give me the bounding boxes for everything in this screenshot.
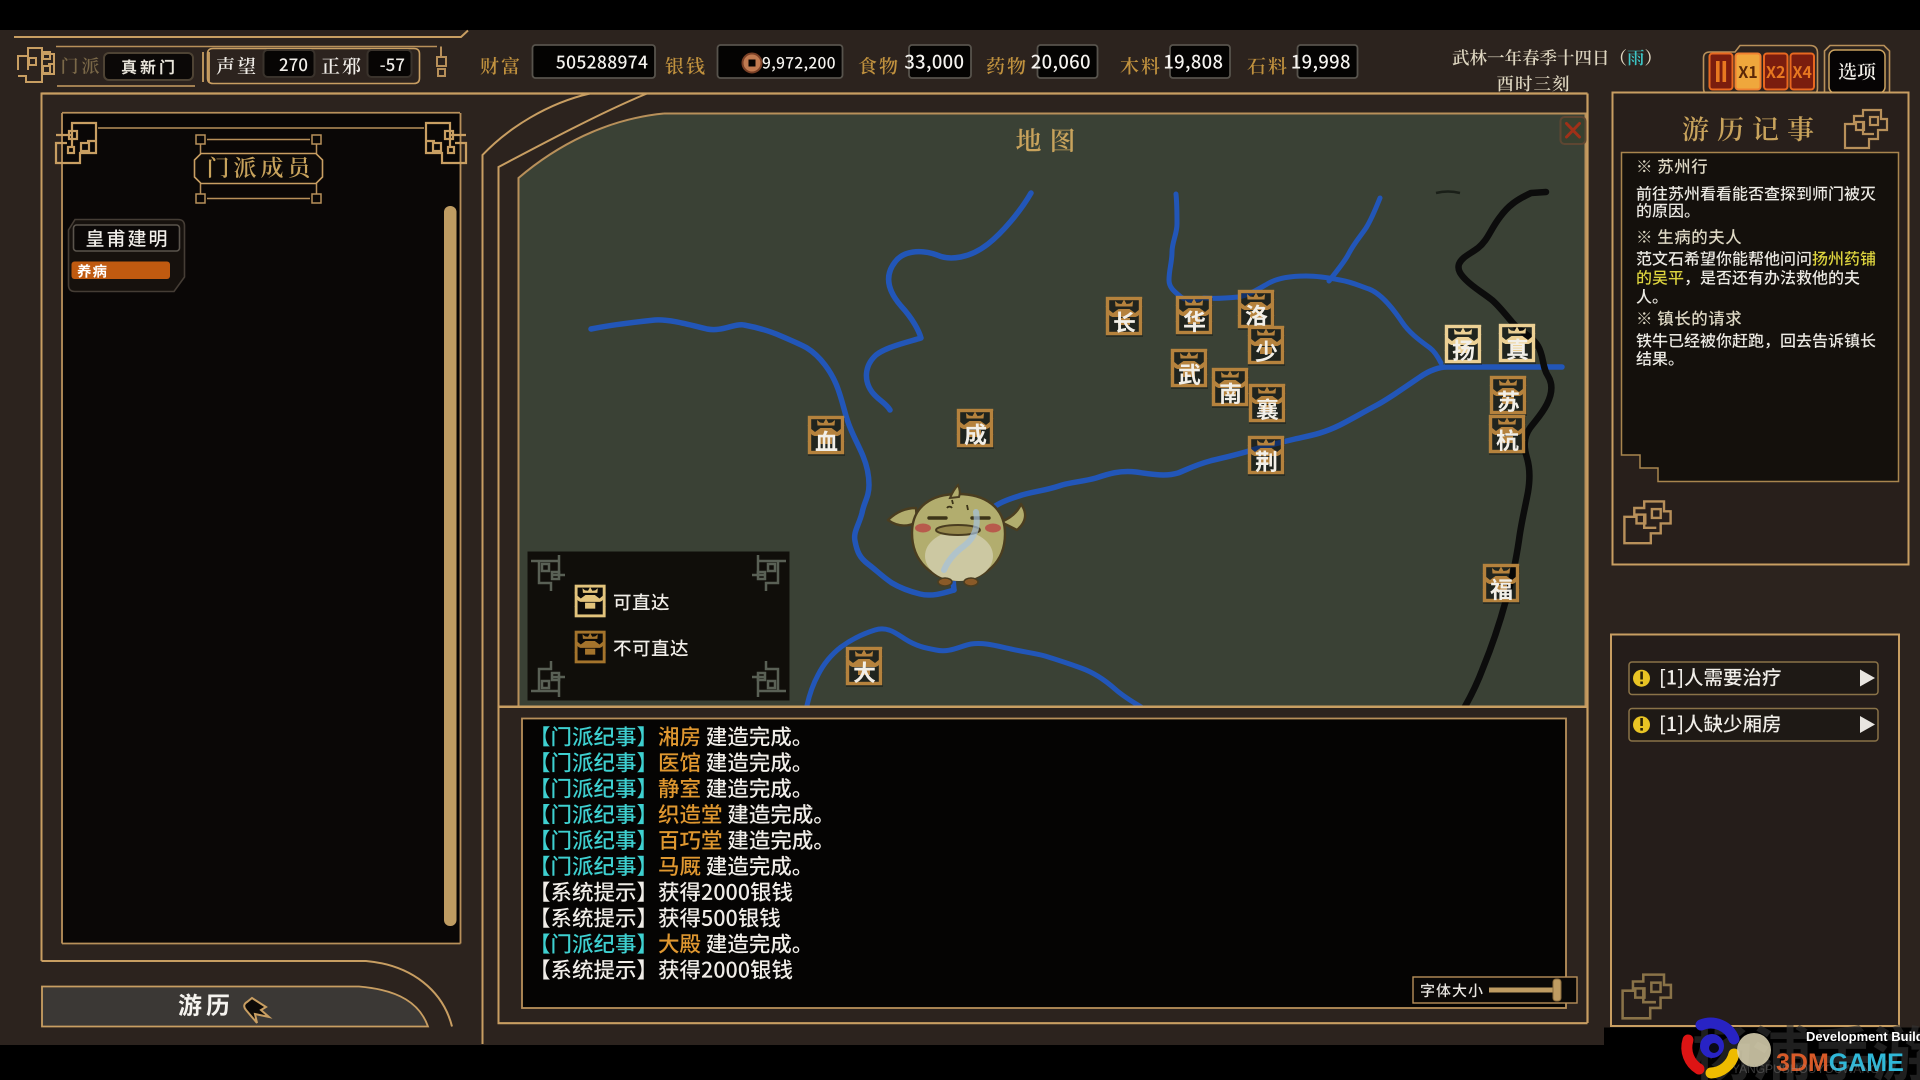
svg-text:YANGPUSHOUYOUWANG: YANGPUSHOUYOUWANG: [1732, 1062, 1879, 1076]
svg-text:Development Build: Development Build: [1806, 1029, 1920, 1044]
